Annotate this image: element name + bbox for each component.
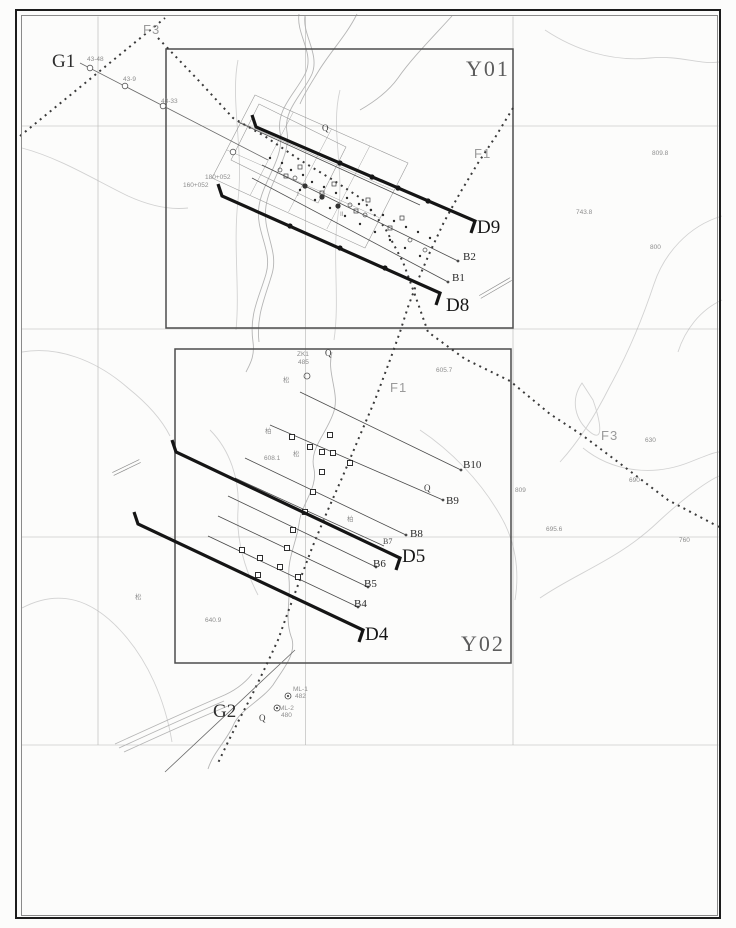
survey-map-page: Y01Y02D9D8D5D4G1G2B2B1B10B9B8B7B6B5B4F3F… [0,0,736,928]
legend: 图 例 D8直流电法Y01 AMT法G1Y01高密度电法激电测深设计点瞬变电磁设… [0,750,736,920]
